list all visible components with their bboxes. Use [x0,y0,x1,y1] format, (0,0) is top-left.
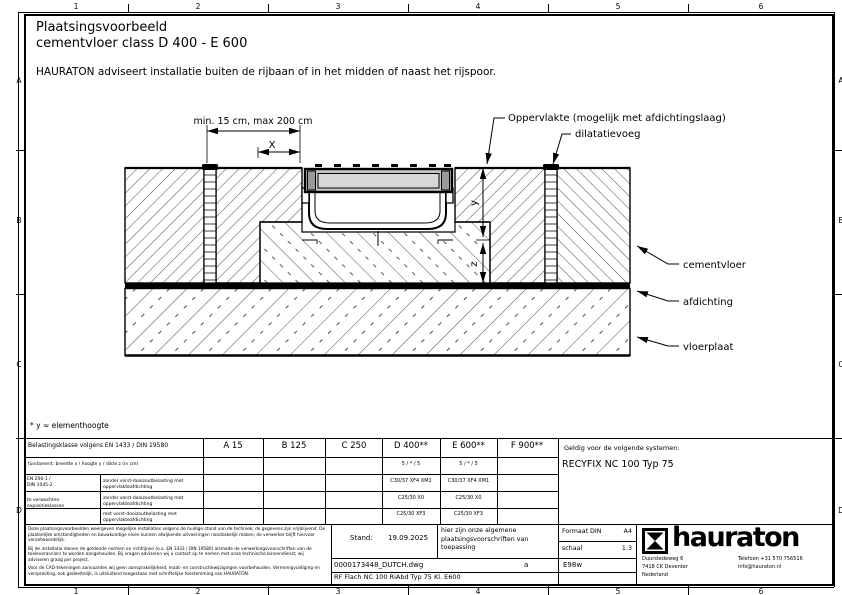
concrete-norm: EN 206-1 / DIN 1045-2 [27,477,97,488]
table-line [100,474,101,524]
dimension-top-label: min. 15 cm, max 200 cm [194,116,313,127]
grid-row-label: D [835,506,842,515]
class-f900: F 900** [499,442,555,452]
floor-slab-label: vloerplaat [683,342,733,353]
grid-col-label: 6 [755,587,767,595]
company-email: info@hauraton.nl [738,564,781,570]
condition-row-3: met vorst-dooizoutbelasting met oppervla… [103,512,201,523]
sealing-label: afdichting [683,297,733,308]
table-line [331,558,636,559]
drainage-channel [302,166,453,230]
class-e600: E 600** [441,442,496,452]
scale-label: schaal [562,545,582,552]
address-line1: Duurstedeweg 6 [642,556,683,562]
grate-end-cap-right [442,171,450,190]
concrete-e600-r3: C25/30 XF3 [441,512,496,518]
concrete-e600-r1: C30/37 XF4 XM1 [441,479,496,485]
grid-col-label: 2 [192,587,204,595]
company-phone: Telefoon +31 570 756516 [738,556,803,562]
table-line [203,438,204,524]
grid-tick [128,586,129,595]
dilatation-joint-left [202,164,218,283]
disclaimer-p1: Deze plaatsingsvoorbeelden weergeven mog… [28,527,326,544]
stand-value: 19.09.2025 [388,534,428,542]
concrete-e600-r2: C25/30 X0 [441,496,496,502]
drawing-title: RF Flach NC 100 RiAbd Typ 75 Kl. E600 [334,574,461,581]
general-note: hier zijn onze algemene plaatsingsvoorsc… [441,527,553,553]
concrete-d400-r2: C25/30 X0 [383,496,439,502]
cement-block-right-outer [557,168,630,283]
address-line2: 7418 CK Deventer [642,564,688,570]
concrete-d400-r1: C30/37 XF4 XM1 [383,479,439,485]
grid-tick [688,586,689,595]
exposure-line1: te verwachten [27,498,59,503]
table-line [24,457,558,458]
floor-slab [125,289,630,356]
cross-section-drawing: min. 15 cm, max 200 cm X y z Oppervlakte… [0,0,842,445]
disclaimer-text: Deze plaatsingsvoorbeelden weergeven mog… [28,527,326,581]
drawing-sheet: 1 2 3 4 5 6 1 2 3 4 5 6 A B C D A B C D … [0,0,842,595]
dilatation-joint-right [543,164,559,283]
stand-label: Stand: [350,534,373,542]
grid-col-label: 4 [472,587,484,595]
grid-tick [408,586,409,595]
revision: a [524,561,528,569]
valid-systems-label: Geldig voor de volgende systemen: [564,445,680,452]
company-name: hauraton [672,524,799,551]
company-contact: Telefoon +31 570 756516 info@hauraton.nl [738,556,803,572]
class-c250: C 250 [326,442,382,452]
grate-inner [318,174,439,189]
channel-foundation [260,222,490,283]
grate-end-cap-left [308,171,316,190]
valid-systems-value: RECYFIX NC 100 Typ 75 [562,460,674,471]
footnote-element-height: * y ≈ elementhoogte [30,421,109,430]
grid-tick [548,586,549,595]
dimension-y-label: y [469,200,480,206]
format-label: Formaat DIN [562,528,601,535]
foundation-d400: 5 / * / 5 [383,462,439,468]
table-line [24,438,834,439]
table-line [263,438,264,524]
sheet-outer-bottom-line [18,587,834,588]
dimension-x-label: X [269,140,276,151]
concrete-norm-line2: DIN 1045-2 [27,483,53,488]
exposure-classes-label: te verwachten expositieklassen [27,498,97,509]
author: E98w [563,561,582,569]
hauraton-logo-icon [642,528,668,558]
dimension-x [258,147,300,158]
format-value: A4 [600,528,632,535]
foundation-e600: 5 / * / 5 [441,462,496,468]
table-line [437,524,438,558]
dimension-z-label: z [469,261,480,266]
table-line [558,438,559,584]
load-class-header: Belastingsklasse volgens EN 1433 / DIN 1… [28,443,200,450]
surface-label: Oppervlakte (mogelijk met afdichtingslaa… [508,113,726,124]
table-line [331,524,332,584]
sealing-layer [125,283,630,289]
cement-floor-label: cementvloer [683,260,747,271]
exposure-line2: expositieklassen [27,504,64,509]
class-d400: D 400** [383,442,439,452]
disclaimer-p2: Bij de installatie dienen de geldende no… [28,547,326,564]
grid-col-label: 3 [332,587,344,595]
class-a15: A 15 [205,442,261,452]
dimension-top [207,125,300,163]
table-line [24,491,558,492]
grid-col-label: 1 [70,587,82,595]
table-line [24,508,558,509]
condition-row-1: zonder vorst-dooizoutbelasting met opper… [103,479,201,490]
concrete-d400-r3: C25/30 XF3 [383,512,439,518]
disclaimer-p3: Voor de CAD-tekeningen aanvaarden wij ge… [28,566,326,577]
concrete-norm-line1: EN 206-1 / [27,477,51,482]
grid-col-label: 5 [612,587,624,595]
scale-value: 1:3 [600,545,632,552]
table-line [497,438,498,524]
grid-tick [268,586,269,595]
file-name: 0000173448_DUTCH.dwg [334,561,423,569]
company-block: hauraton Duurstedeweg 6 7418 CK Deventer… [636,524,834,584]
dilatation-joint-label: dilatatievoeg [575,129,640,140]
table-line [558,541,636,542]
address-line3: Nederland [642,572,668,578]
foundation-row-label: fundament: breedte x / hoogte y / dikte … [28,462,200,468]
table-line [24,474,558,475]
company-address: Duurstedeweg 6 7418 CK Deventer Nederlan… [642,556,688,579]
cement-block-left-outer [125,168,204,283]
condition-row-2: zonder vorst-dooizoutbelasting met opper… [103,496,201,507]
class-b125: B 125 [266,442,322,452]
